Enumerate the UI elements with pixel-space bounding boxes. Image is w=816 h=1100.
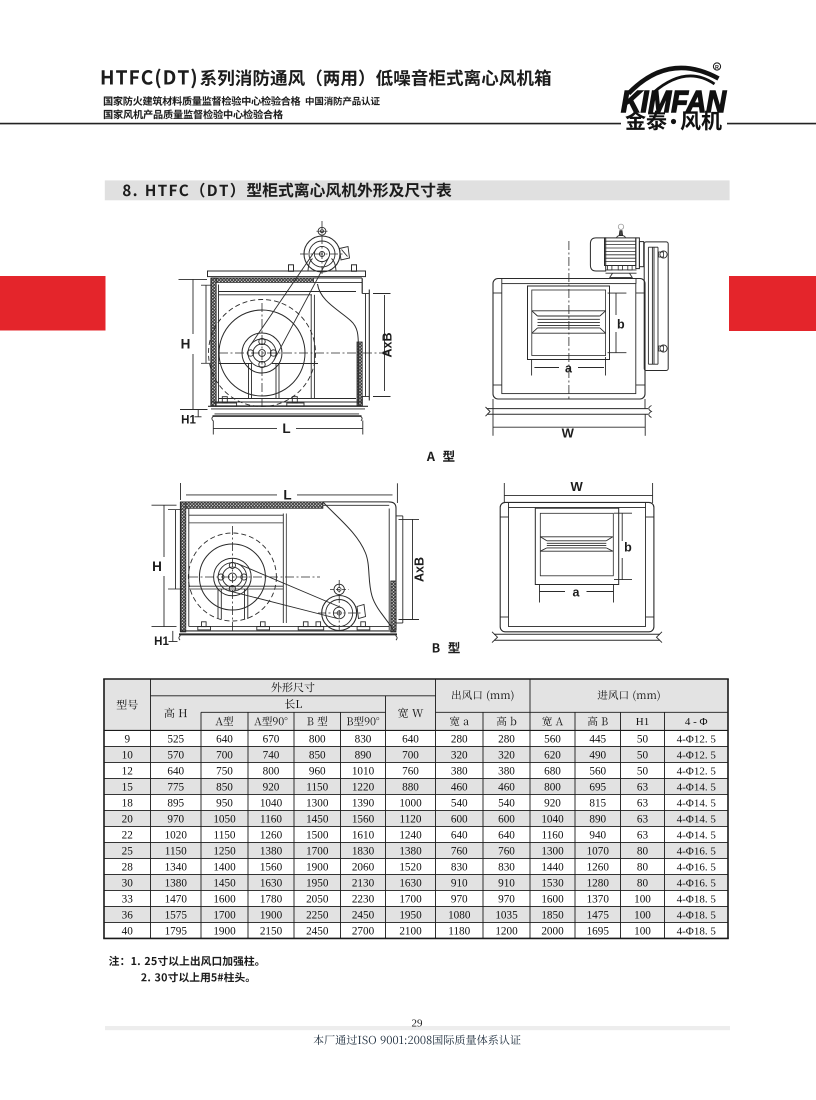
svg-text:1780: 1780 <box>260 894 283 906</box>
svg-text:1160: 1160 <box>260 814 282 826</box>
svg-text:1500: 1500 <box>306 830 329 842</box>
svg-text:280: 280 <box>451 734 468 746</box>
svg-text:800: 800 <box>544 782 561 794</box>
svg-text:H1: H1 <box>636 716 649 728</box>
svg-text:W: W <box>571 479 584 494</box>
svg-text:1040: 1040 <box>541 814 564 826</box>
svg-text:2150: 2150 <box>260 926 283 938</box>
svg-text:1440: 1440 <box>541 862 564 874</box>
svg-text:1040: 1040 <box>260 798 283 810</box>
svg-text:2100: 2100 <box>399 926 422 938</box>
svg-text:1900: 1900 <box>260 910 283 922</box>
svg-text:1400: 1400 <box>213 862 236 874</box>
svg-text:12: 12 <box>122 766 133 778</box>
svg-text:1050: 1050 <box>213 814 236 826</box>
svg-text:800: 800 <box>309 734 326 746</box>
svg-text:1575: 1575 <box>165 910 188 922</box>
svg-text:670: 670 <box>263 734 280 746</box>
svg-text:1450: 1450 <box>213 878 236 890</box>
svg-text:50: 50 <box>637 734 649 746</box>
svg-text:1600: 1600 <box>213 894 236 906</box>
svg-text:320: 320 <box>451 750 468 762</box>
svg-text:1700: 1700 <box>399 894 422 906</box>
svg-text:2450: 2450 <box>352 910 375 922</box>
svg-text:910: 910 <box>451 878 468 890</box>
svg-text:4-Φ14. 5: 4-Φ14. 5 <box>677 814 717 826</box>
svg-text:680: 680 <box>544 766 561 778</box>
svg-text:850: 850 <box>216 782 233 794</box>
svg-text:2250: 2250 <box>306 910 329 922</box>
svg-text:1560: 1560 <box>260 862 283 874</box>
svg-text:920: 920 <box>263 782 280 794</box>
svg-text:540: 540 <box>451 798 468 810</box>
svg-text:1260: 1260 <box>587 862 610 874</box>
svg-text:1600: 1600 <box>541 894 564 906</box>
svg-text:640: 640 <box>451 830 468 842</box>
svg-text:640: 640 <box>216 734 233 746</box>
svg-text:H1: H1 <box>181 415 196 427</box>
svg-text:525: 525 <box>167 734 184 746</box>
svg-text:28: 28 <box>122 862 134 874</box>
svg-text:b: b <box>617 317 625 331</box>
svg-text:25: 25 <box>122 846 134 858</box>
svg-text:760: 760 <box>402 766 419 778</box>
svg-text:63: 63 <box>637 814 649 826</box>
svg-text:1370: 1370 <box>587 894 610 906</box>
svg-text:760: 760 <box>498 846 515 858</box>
svg-text:445: 445 <box>589 734 606 746</box>
svg-text:4-Φ14. 5: 4-Φ14. 5 <box>677 830 717 842</box>
svg-text:9: 9 <box>124 734 130 746</box>
svg-text:700: 700 <box>402 750 419 762</box>
svg-text:1300: 1300 <box>541 846 564 858</box>
svg-text:1475: 1475 <box>587 910 610 922</box>
svg-text:830: 830 <box>355 734 372 746</box>
svg-text:4-Φ12. 5: 4-Φ12. 5 <box>677 734 717 746</box>
svg-text:830: 830 <box>498 862 515 874</box>
svg-text:800: 800 <box>263 766 280 778</box>
svg-text:4-Φ18. 5: 4-Φ18. 5 <box>677 894 717 906</box>
svg-text:1260: 1260 <box>260 830 283 842</box>
svg-text:1250: 1250 <box>213 846 236 858</box>
svg-text:815: 815 <box>589 798 606 810</box>
svg-text:970: 970 <box>451 894 468 906</box>
svg-text:1390: 1390 <box>352 798 375 810</box>
svg-text:4-Φ18. 5: 4-Φ18. 5 <box>677 910 717 922</box>
svg-text:36: 36 <box>122 910 134 922</box>
svg-text:2060: 2060 <box>352 862 375 874</box>
svg-text:895: 895 <box>167 798 184 810</box>
svg-text:W: W <box>562 426 575 441</box>
svg-text:1450: 1450 <box>306 814 329 826</box>
svg-text:700: 700 <box>216 750 233 762</box>
svg-text:10: 10 <box>122 750 134 762</box>
svg-text:4-Φ12. 5: 4-Φ12. 5 <box>677 750 717 762</box>
svg-text:2130: 2130 <box>352 878 375 890</box>
svg-text:a: a <box>573 585 581 599</box>
svg-text:30: 30 <box>122 878 134 890</box>
svg-text:b: b <box>624 541 632 555</box>
svg-text:1200: 1200 <box>495 926 518 938</box>
svg-text:L: L <box>282 421 290 436</box>
svg-text:1695: 1695 <box>587 926 610 938</box>
svg-text:460: 460 <box>498 782 515 794</box>
svg-text:4-Φ16. 5: 4-Φ16. 5 <box>677 862 717 874</box>
svg-text:890: 890 <box>355 750 372 762</box>
svg-text:50: 50 <box>637 766 649 778</box>
svg-text:1950: 1950 <box>306 878 329 890</box>
svg-text:1070: 1070 <box>587 846 610 858</box>
svg-text:20: 20 <box>122 814 134 826</box>
svg-text:1120: 1120 <box>400 814 422 826</box>
svg-text:600: 600 <box>451 814 468 826</box>
svg-text:29: 29 <box>412 1018 424 1030</box>
svg-text:AxB: AxB <box>413 557 427 582</box>
svg-text:1240: 1240 <box>399 830 422 842</box>
svg-text:a: a <box>565 361 573 375</box>
svg-text:1700: 1700 <box>306 846 329 858</box>
svg-text:4-Φ14. 5: 4-Φ14. 5 <box>677 782 717 794</box>
svg-text:1010: 1010 <box>352 766 375 778</box>
svg-text:910: 910 <box>498 878 515 890</box>
svg-text:4-Φ14. 5: 4-Φ14. 5 <box>677 798 717 810</box>
svg-text:760: 760 <box>451 846 468 858</box>
svg-text:1380: 1380 <box>260 846 283 858</box>
svg-text:1520: 1520 <box>399 862 422 874</box>
svg-text:AxB: AxB <box>381 332 395 357</box>
svg-text:18: 18 <box>122 798 134 810</box>
svg-text:740: 740 <box>263 750 280 762</box>
svg-text:560: 560 <box>589 766 606 778</box>
svg-text:1035: 1035 <box>495 910 518 922</box>
svg-text:2000: 2000 <box>541 926 564 938</box>
svg-text:1080: 1080 <box>448 910 471 922</box>
svg-text:2230: 2230 <box>352 894 375 906</box>
svg-text:1000: 1000 <box>399 798 422 810</box>
svg-text:1795: 1795 <box>165 926 188 938</box>
svg-text:460: 460 <box>451 782 468 794</box>
svg-text:600: 600 <box>498 814 515 826</box>
svg-text:2700: 2700 <box>352 926 375 938</box>
svg-text:R: R <box>715 65 719 71</box>
svg-text:1150: 1150 <box>165 846 187 858</box>
svg-text:560: 560 <box>544 734 561 746</box>
svg-text:695: 695 <box>589 782 606 794</box>
svg-text:880: 880 <box>402 782 419 794</box>
svg-text:100: 100 <box>634 926 651 938</box>
svg-text:570: 570 <box>167 750 184 762</box>
svg-text:1380: 1380 <box>399 846 422 858</box>
svg-text:4-Φ16. 5: 4-Φ16. 5 <box>677 878 717 890</box>
svg-text:640: 640 <box>498 830 515 842</box>
svg-text:1380: 1380 <box>165 878 188 890</box>
svg-text:L: L <box>283 487 291 502</box>
svg-text:15: 15 <box>122 782 134 794</box>
svg-text:80: 80 <box>637 862 649 874</box>
svg-text:22: 22 <box>122 830 133 842</box>
svg-text:970: 970 <box>167 814 184 826</box>
svg-text:63: 63 <box>637 782 649 794</box>
svg-text:H: H <box>152 559 162 574</box>
svg-text:960: 960 <box>309 766 326 778</box>
svg-text:4-Φ12. 5: 4-Φ12. 5 <box>677 766 717 778</box>
svg-text:775: 775 <box>167 782 184 794</box>
svg-text:380: 380 <box>498 766 515 778</box>
svg-text:1020: 1020 <box>165 830 188 842</box>
svg-text:4 - Φ: 4 - Φ <box>685 716 708 728</box>
svg-text:100: 100 <box>634 894 651 906</box>
svg-text:1340: 1340 <box>165 862 188 874</box>
svg-text:540: 540 <box>498 798 515 810</box>
svg-text:1150: 1150 <box>306 782 328 794</box>
svg-text:490: 490 <box>589 750 606 762</box>
svg-text:1530: 1530 <box>541 878 564 890</box>
svg-text:1160: 1160 <box>542 830 564 842</box>
svg-text:H: H <box>181 337 191 352</box>
svg-text:1220: 1220 <box>352 782 375 794</box>
svg-text:640: 640 <box>402 734 419 746</box>
svg-text:50: 50 <box>637 750 649 762</box>
svg-text:4-Φ18. 5: 4-Φ18. 5 <box>677 926 717 938</box>
svg-text:1280: 1280 <box>587 878 610 890</box>
svg-text:1150: 1150 <box>214 830 236 842</box>
svg-text:1630: 1630 <box>260 878 283 890</box>
svg-text:63: 63 <box>637 830 649 842</box>
svg-text:1300: 1300 <box>306 798 329 810</box>
svg-text:1950: 1950 <box>399 910 422 922</box>
svg-text:80: 80 <box>637 878 649 890</box>
svg-text:280: 280 <box>498 734 515 746</box>
svg-text:40: 40 <box>122 926 134 938</box>
svg-text:100: 100 <box>634 910 651 922</box>
svg-text:1560: 1560 <box>352 814 375 826</box>
svg-text:920: 920 <box>544 798 561 810</box>
svg-text:940: 940 <box>589 830 606 842</box>
svg-text:1900: 1900 <box>213 926 236 938</box>
svg-text:320: 320 <box>498 750 515 762</box>
svg-text:850: 850 <box>309 750 326 762</box>
svg-text:750: 750 <box>216 766 233 778</box>
svg-text:4-Φ16. 5: 4-Φ16. 5 <box>677 846 717 858</box>
svg-text:380: 380 <box>451 766 468 778</box>
svg-text:950: 950 <box>216 798 233 810</box>
svg-text:830: 830 <box>451 862 468 874</box>
svg-text:1850: 1850 <box>541 910 564 922</box>
svg-text:2050: 2050 <box>306 894 329 906</box>
svg-text:1180: 1180 <box>448 926 470 938</box>
svg-text:1630: 1630 <box>399 878 422 890</box>
svg-text:640: 640 <box>167 766 184 778</box>
svg-text:620: 620 <box>544 750 561 762</box>
svg-text:80: 80 <box>637 846 649 858</box>
svg-text:1830: 1830 <box>352 846 375 858</box>
svg-text:1470: 1470 <box>165 894 188 906</box>
svg-text:890: 890 <box>589 814 606 826</box>
svg-text:970: 970 <box>498 894 515 906</box>
svg-text:H1: H1 <box>154 636 169 648</box>
svg-text:63: 63 <box>637 798 649 810</box>
svg-text:1900: 1900 <box>306 862 329 874</box>
svg-text:1700: 1700 <box>213 910 236 922</box>
svg-text:2450: 2450 <box>306 926 329 938</box>
svg-text:33: 33 <box>122 894 134 906</box>
svg-text:1610: 1610 <box>352 830 375 842</box>
